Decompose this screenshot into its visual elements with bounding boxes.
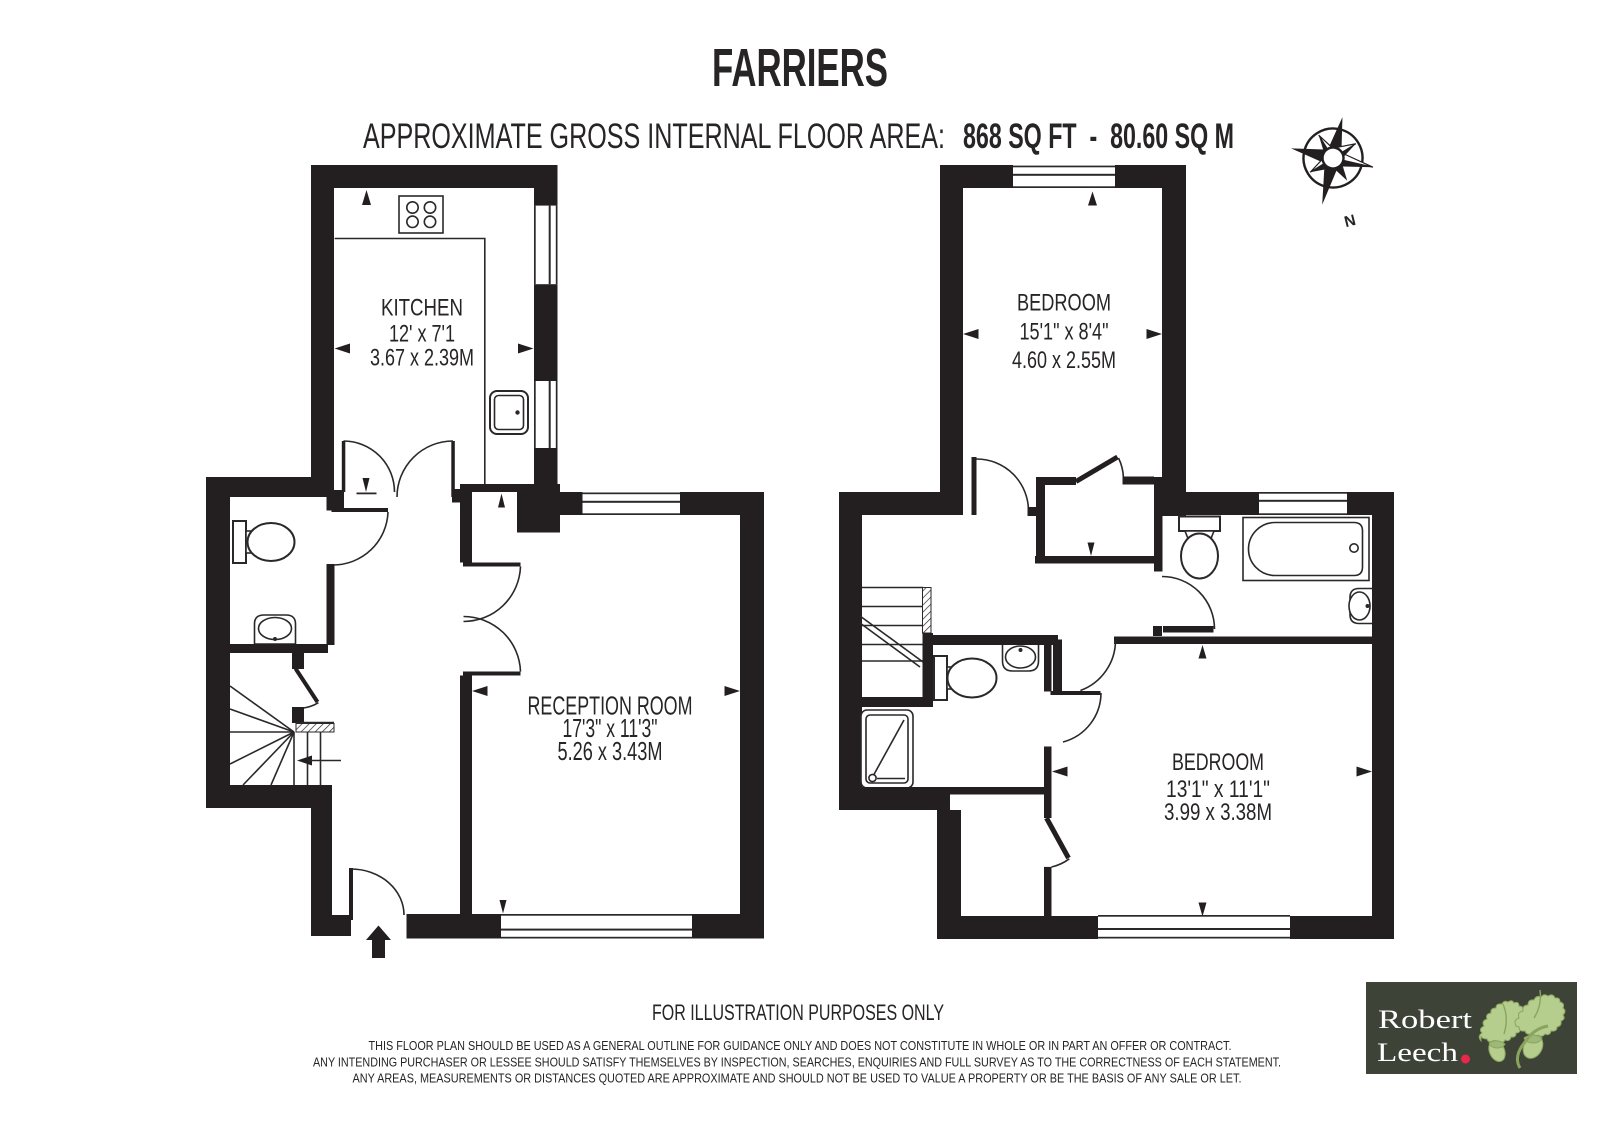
svg-text:4.60 x 2.55M: 4.60 x 2.55M (1012, 347, 1116, 374)
svg-text:3.99 x 3.38M: 3.99 x 3.38M (1164, 799, 1272, 826)
svg-text:KITCHEN: KITCHEN (381, 295, 463, 322)
svg-text:3.67 x 2.39M: 3.67 x 2.39M (370, 345, 474, 372)
svg-text:ANY INTENDING PURCHASER OR LES: ANY INTENDING PURCHASER OR LESSEE SHOULD… (313, 1056, 1281, 1070)
svg-text:Robert: Robert (1378, 1005, 1473, 1034)
svg-text:Leech: Leech (1377, 1038, 1458, 1067)
svg-text:5.26 x 3.43M: 5.26 x 3.43M (558, 736, 663, 766)
svg-text:ANY AREAS, MEASUREMENTS OR DIS: ANY AREAS, MEASUREMENTS OR DISTANCES QUO… (353, 1072, 1242, 1086)
svg-text:BEDROOM: BEDROOM (1172, 749, 1264, 776)
svg-text:BEDROOM: BEDROOM (1017, 290, 1111, 317)
svg-text:868 SQ FT - 80.60 SQ M: 868 SQ FT - 80.60 SQ M (963, 117, 1234, 156)
svg-text:15'1" x 8'4": 15'1" x 8'4" (1020, 319, 1109, 346)
svg-text:THIS FLOOR PLAN SHOULD BE USED: THIS FLOOR PLAN SHOULD BE USED AS A GENE… (369, 1039, 1232, 1053)
svg-text:12' x 7'1: 12' x 7'1 (389, 321, 455, 348)
svg-text:FARRIERS: FARRIERS (712, 38, 888, 98)
svg-text:FOR ILLUSTRATION PURPOSES ONLY: FOR ILLUSTRATION PURPOSES ONLY (652, 1000, 944, 1025)
svg-text:APPROXIMATE GROSS INTERNAL FLO: APPROXIMATE GROSS INTERNAL FLOOR AREA: (363, 117, 945, 156)
